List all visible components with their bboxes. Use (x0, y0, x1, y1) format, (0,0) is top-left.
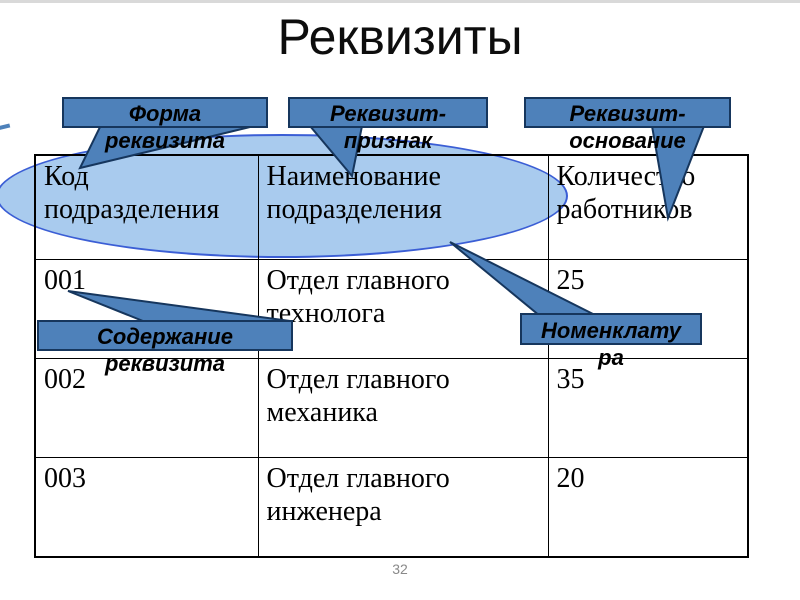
nomenclature-callout-label: Номенклату ра (520, 317, 702, 371)
cell-name: Отдел главного инженера (258, 458, 548, 558)
slide-title: Реквизиты (0, 8, 800, 66)
cell-code: 003 (35, 458, 258, 558)
top-border-strip (0, 0, 800, 3)
header-cell-code: Код подразделения (35, 155, 258, 260)
slide: Реквизиты Код подразделения Наименование… (0, 0, 800, 600)
form-callout-line2: реквизита (62, 127, 268, 154)
cell-name: Отдел главного механика (258, 359, 548, 458)
feature-callout-line1: Реквизит- (288, 100, 488, 127)
header-cell-count: Количество работников (548, 155, 748, 260)
content-callout-label: Содержание реквизита (37, 323, 293, 377)
base-callout-line2: основание (524, 127, 731, 154)
form-callout-label: Форма реквизита (62, 100, 268, 154)
cell-name: Отдел главного технолога (258, 260, 548, 359)
cell-count: 35 (548, 359, 748, 458)
table-row: 003 Отдел главного инженера 20 (35, 458, 748, 558)
base-callout-label: Реквизит- основание (524, 100, 731, 154)
nomenclature-callout-line1: Номенклату (520, 317, 702, 344)
cell-count: 20 (548, 458, 748, 558)
page-number: 32 (0, 561, 800, 577)
base-callout-line1: Реквизит- (524, 100, 731, 127)
content-callout-line2: реквизита (37, 350, 293, 377)
form-callout-line1: Форма (62, 100, 268, 127)
header-cell-name: Наименование подразделения (258, 155, 548, 260)
decor-dash (0, 123, 10, 130)
nomenclature-callout-line2: ра (520, 344, 702, 371)
table-header-row: Код подразделения Наименование подраздел… (35, 155, 748, 260)
feature-callout-label: Реквизит- признак (288, 100, 488, 154)
feature-callout-line2: признак (288, 127, 488, 154)
content-callout-line1: Содержание (37, 323, 293, 350)
